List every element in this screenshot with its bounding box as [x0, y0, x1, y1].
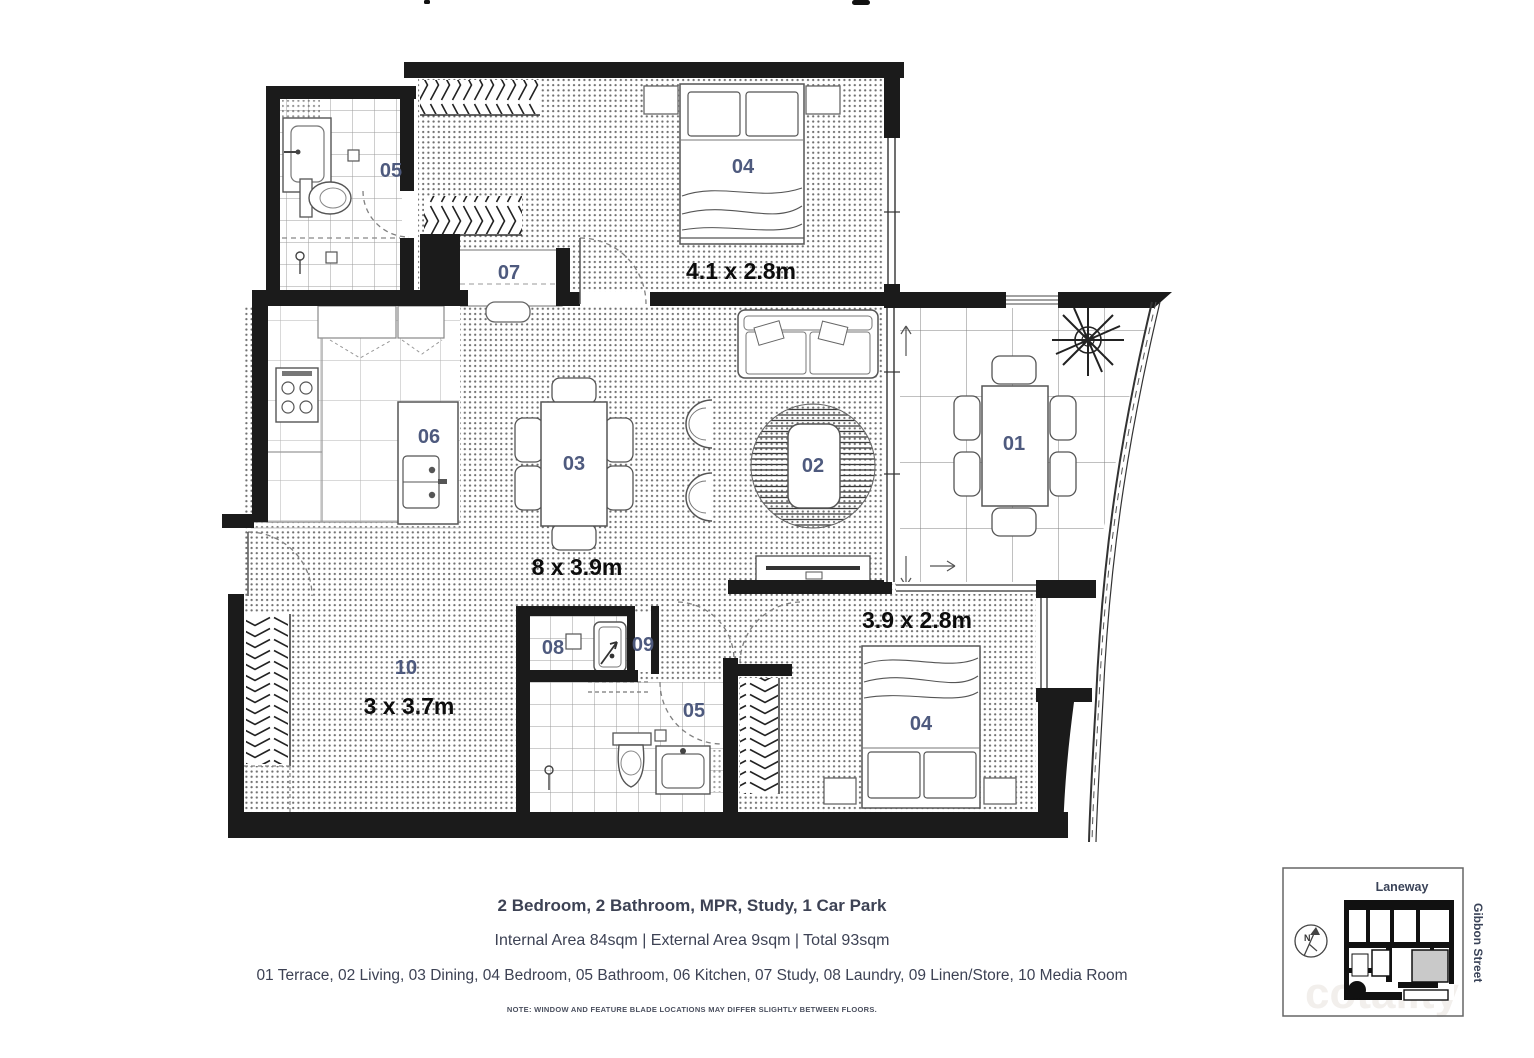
dimension-bedroom1: 4.1 x 2.8m	[686, 258, 796, 284]
cooktop	[276, 368, 318, 422]
bedside-table	[644, 86, 678, 114]
bedroom2-terrace-window	[896, 582, 1036, 594]
room-label-dining: 03	[563, 453, 585, 475]
sofa	[738, 310, 878, 378]
dimension-living-dining: 8 x 3.9m	[532, 554, 623, 580]
dimension-media: 3 x 3.7m	[364, 693, 455, 719]
room-label-media: 10	[395, 657, 417, 679]
tv-unit	[756, 556, 870, 584]
bedroom1-window	[884, 138, 900, 284]
island-bench	[398, 402, 458, 524]
room-label-laundry: 08	[542, 637, 564, 659]
areas-line: Internal Area 84sqm | External Area 9sqm…	[0, 932, 1384, 950]
bedroom2-robe	[740, 678, 779, 794]
fridge	[398, 306, 444, 338]
room-legend: 01 Terrace, 02 Living, 03 Dining, 04 Bed…	[0, 967, 1384, 985]
desk-chair	[486, 302, 530, 322]
bedside-table	[824, 778, 856, 804]
living-terrace-slider	[884, 308, 900, 582]
highlighted-unit	[1412, 950, 1448, 982]
summary-line: 2 Bedroom, 2 Bathroom, MPR, Study, 1 Car…	[0, 896, 1384, 916]
footnote: NOTE: WINDOW AND FEATURE BLADE LOCATIONS…	[0, 1005, 1384, 1014]
gibbon-street-label: Gibbon Street	[1471, 903, 1485, 982]
cropped-title-remnant	[424, 0, 870, 5]
room-label-living: 02	[802, 455, 824, 477]
terrace-louver	[1006, 292, 1058, 308]
room-label-terrace: 01	[1003, 433, 1025, 455]
room-label-study: 07	[498, 262, 520, 284]
room-label-bathroom-bottom: 05	[683, 700, 705, 722]
dimension-bedroom2: 3.9 x 2.8m	[862, 607, 972, 633]
bedside-table	[984, 778, 1016, 804]
pantry	[318, 306, 396, 338]
room-label-bathroom-top: 05	[380, 160, 402, 182]
kitchen	[252, 306, 460, 528]
bathroom-top	[280, 99, 409, 291]
bedroom2-side-window	[1038, 598, 1052, 688]
vanity	[656, 746, 710, 794]
room-label-kitchen: 06	[418, 426, 440, 448]
room-label-linen: 09	[632, 634, 654, 656]
room-label-bedroom1: 04	[732, 156, 755, 178]
laneway-label: Laneway	[1376, 880, 1429, 894]
room-label-bedroom2: 04	[910, 713, 933, 735]
floorplan-page: 05 07 04 06 03 02 01 08 09 10 05 04 4.1 …	[0, 0, 1534, 1058]
bedside-table	[806, 86, 840, 114]
